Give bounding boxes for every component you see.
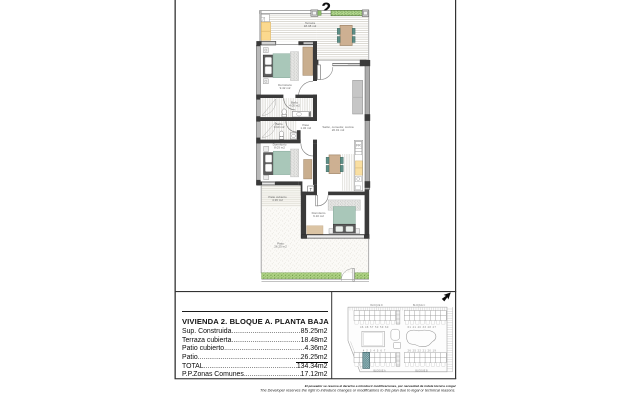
svg-text:BLOQUE B: BLOQUE B <box>415 370 428 373</box>
svg-text:61 41 40 33 28 27: 61 41 40 33 28 27 <box>408 327 437 329</box>
svg-text:BLOQUE C: BLOQUE C <box>413 304 426 307</box>
svg-text:20.01 m2: 20.01 m2 <box>332 128 345 132</box>
svg-text:T: T <box>309 187 312 192</box>
svg-text:BLOQUE D: BLOQUE D <box>370 304 383 307</box>
svg-text:4.05 m2: 4.05 m2 <box>289 103 300 107</box>
svg-text:1.32 m2: 1.32 m2 <box>300 126 311 130</box>
svg-text:9.42 m2: 9.42 m2 <box>280 86 291 90</box>
svg-text:4.36 m2: 4.36 m2 <box>272 198 283 202</box>
svg-text:8.03 m2: 8.03 m2 <box>274 146 285 150</box>
svg-text:The Developer reserves the rig: The Developer reserves the right to intr… <box>260 389 455 393</box>
svg-text:BLOQUE A: BLOQUE A <box>373 370 385 373</box>
svg-text:3.10 m2: 3.10 m2 <box>274 125 285 129</box>
svg-text:46 48 57 50 59 60: 46 48 57 50 59 60 <box>360 327 389 329</box>
svg-text:18.48 m2: 18.48 m2 <box>304 24 317 28</box>
svg-text:9.10 m2: 9.10 m2 <box>313 214 324 218</box>
svg-text:El poseedor se reserva el dere: El poseedor se reserva el derecho a intr… <box>305 384 456 388</box>
svg-text:26.25 m2: 26.25 m2 <box>274 245 287 249</box>
svg-text:26 25 22 21 20 19: 26 25 22 21 20 19 <box>408 351 437 353</box>
svg-text:FR: FR <box>356 144 361 148</box>
